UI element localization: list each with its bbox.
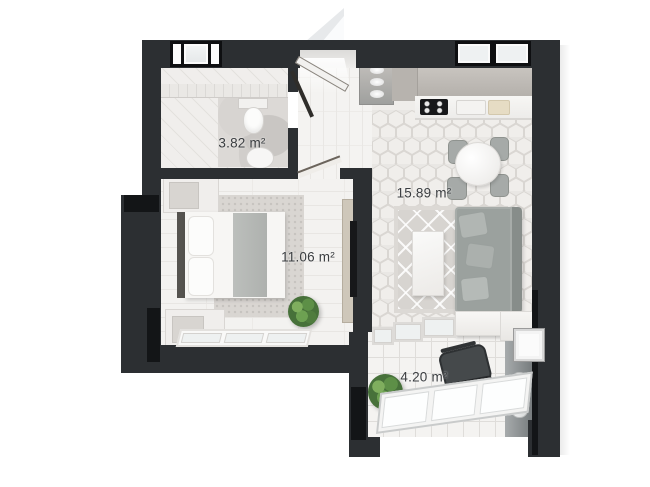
coffee-table [412,231,444,296]
tv [350,221,357,297]
pillar-balcony-left [351,387,366,440]
dining-table [455,142,501,186]
bedroom-window [176,329,312,347]
wall-left [142,40,161,345]
hall-wardrobe [359,62,394,105]
window-glass [181,333,222,343]
wall-outer-shade [560,45,570,455]
area-label-balcony: 4.20 m² [400,370,447,385]
window-glass [223,333,264,343]
cooktop [420,99,448,115]
bathtub-ledge [161,84,288,98]
bed-pillow [188,216,214,256]
window-frame [211,44,219,64]
window-glass [381,391,428,428]
bed-headboard [177,212,185,298]
kitchen-sink [456,100,486,115]
floor-plan: 3.82 m² 15.89 m² 11.06 m² 4.20 m² [0,0,650,487]
hanger-icon [370,78,384,86]
sofa-pillow [460,276,490,303]
balcony-partition-window [393,322,423,342]
bed-pillow [188,257,214,296]
sofa-pillow [464,242,495,270]
nightstand-decor [169,182,199,209]
wall-balcony-bottom-left [349,437,380,457]
window-glass [184,44,208,64]
window-glass [431,384,478,421]
hanger-icon [370,90,384,98]
window-glass [458,44,490,63]
sofa-pillow [457,211,489,239]
balcony-partition-window [372,327,394,345]
pillar-right-wall [532,290,538,455]
window-glass [266,333,307,343]
balcony-partition-window [422,317,456,338]
window-glass [374,329,392,343]
bedroom-plant-icon [288,296,319,327]
nightstand [163,177,219,213]
area-label-kitchen-living: 15.89 m² [397,186,452,201]
window-frame [173,44,181,64]
window-glass [480,377,527,414]
pillar-left-bump-bottom [147,308,160,362]
kitchen-windows [455,41,531,66]
area-label-bedroom: 11.06 m² [281,250,335,265]
ac-unit [514,329,544,361]
cutting-board [488,100,510,115]
bathroom-window [170,41,222,67]
window-glass [496,44,528,63]
window-glass [395,324,421,340]
pillar-left-bump-top [124,195,159,212]
window-glass [424,319,454,336]
toilet [243,107,264,134]
bed-runner-blanket [233,213,267,297]
area-label-bathroom: 3.82 m² [218,136,265,151]
wall-bathroom-bottom [161,168,298,179]
